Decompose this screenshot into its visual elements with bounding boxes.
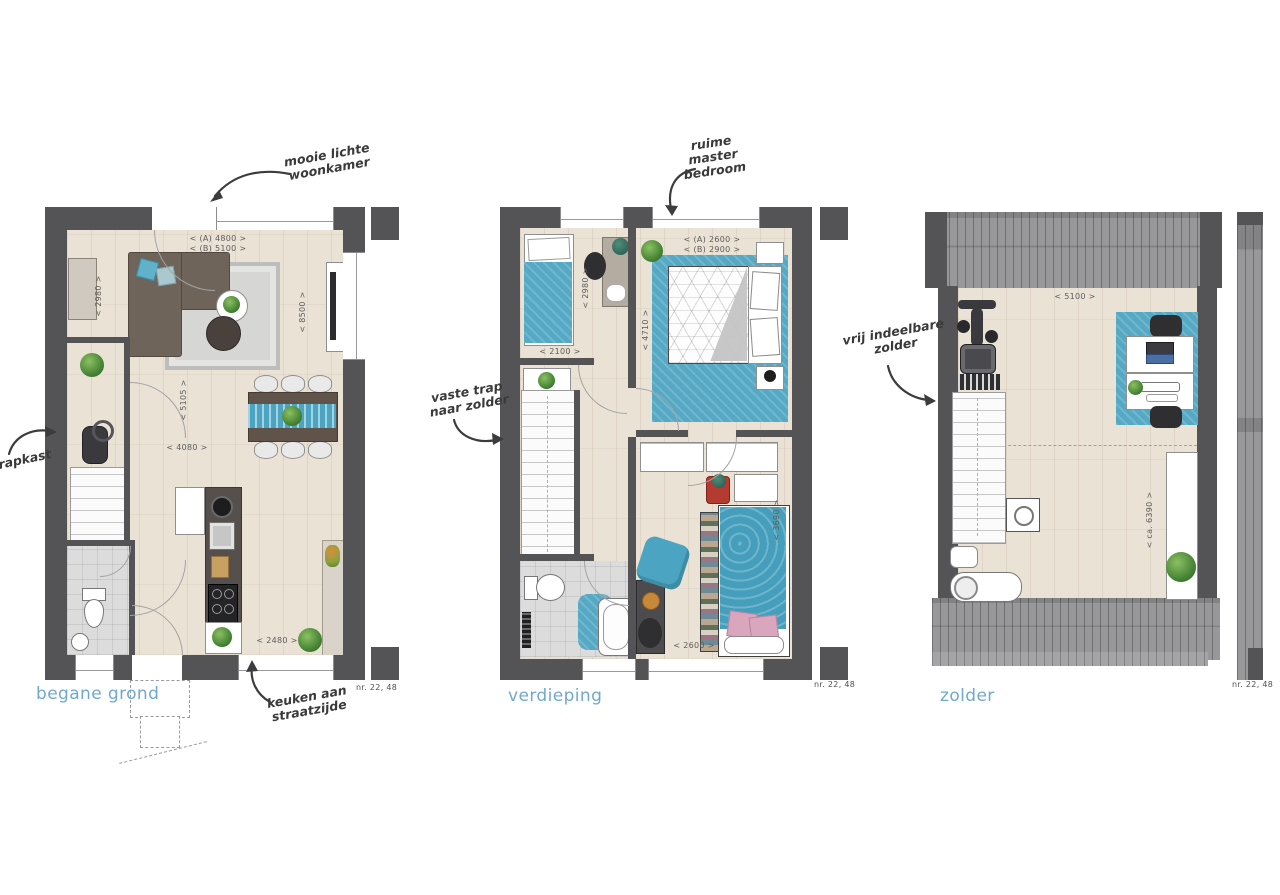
- bed-blanket: [524, 262, 572, 343]
- plant: [223, 296, 240, 313]
- bed-pillow: [750, 317, 781, 357]
- lamp: [764, 370, 776, 382]
- nightstand: [756, 242, 784, 264]
- papers: [606, 284, 626, 302]
- washing-machine-door: [1014, 506, 1034, 526]
- footboard: [724, 636, 784, 654]
- stove-burner: [224, 604, 234, 614]
- wall-post: [1200, 212, 1222, 288]
- dimension-label: < 2100 >: [532, 347, 588, 357]
- dimension-label: < 4710 >: [641, 295, 651, 365]
- dimension-label: < 2980 >: [581, 253, 591, 323]
- plant: [1166, 552, 1196, 582]
- toilet-bowl: [536, 574, 565, 601]
- dining-chair: [308, 441, 332, 459]
- dimension-label: < 2480 >: [247, 636, 307, 646]
- dining-chair: [254, 441, 278, 459]
- annotation-arrow: [878, 360, 942, 410]
- window: [75, 655, 114, 680]
- dimension-label: < 3690 >: [772, 485, 782, 555]
- wall-exterior: [792, 207, 812, 680]
- dining-chair: [281, 441, 305, 459]
- dimension-label: < ca. 6390 >: [1145, 480, 1155, 560]
- dimension-label: < (B) 2900 >: [672, 245, 752, 255]
- annotation-arrow: [448, 412, 510, 450]
- party-wall: [820, 647, 848, 680]
- wall-segment: [67, 337, 130, 343]
- wall-segment: [628, 437, 636, 659]
- roof-strip-neighbor: [1237, 212, 1263, 680]
- bathtub-inner: [603, 604, 629, 650]
- plant: [612, 238, 629, 255]
- stove-burner: [224, 589, 234, 599]
- annotation-arrow: [4, 418, 62, 458]
- plant: [538, 372, 555, 389]
- plant: [212, 627, 232, 647]
- window: [648, 659, 764, 680]
- exercise-bike-seat: [960, 344, 996, 374]
- coffee-machine: [211, 496, 233, 518]
- window: [560, 207, 624, 228]
- roof-slope: [925, 212, 1222, 288]
- staircase-walkline: [977, 398, 978, 536]
- plant: [1128, 380, 1143, 395]
- boiler-cap: [954, 576, 978, 600]
- radiator: [522, 612, 531, 648]
- annotation-arrow: [238, 658, 278, 706]
- floorplan-sheet: < (A) 4800 > < (B) 5100 > < 8500 > < 298…: [0, 0, 1280, 895]
- staircase: [952, 392, 1006, 544]
- wall-segment: [628, 228, 636, 388]
- keyboard: [1146, 394, 1178, 402]
- tv: [330, 272, 336, 340]
- dimension-label: < 8500 >: [298, 277, 308, 347]
- dimension-label: < 2600 >: [666, 641, 722, 651]
- wall-segment: [574, 390, 580, 558]
- party-wall: [371, 647, 399, 680]
- wall-segment: [520, 554, 594, 561]
- wall-post: [925, 212, 947, 288]
- sideboard: [68, 258, 97, 320]
- staircase-walkline: [547, 396, 548, 552]
- office-chair: [1150, 406, 1182, 428]
- wall-segment: [520, 358, 594, 365]
- wall-post: [1237, 212, 1263, 225]
- cutting-board: [211, 556, 229, 578]
- keyboard: [1140, 382, 1180, 392]
- unit-number: nr. 22, 48: [356, 683, 397, 692]
- roof-slope: [932, 598, 1220, 660]
- plan-label-attic: zolder: [940, 686, 995, 706]
- bed-pillow: [527, 237, 570, 261]
- exercise-bike-wheel: [985, 330, 998, 343]
- vegetable-basket: [325, 545, 340, 567]
- unit-number: nr. 22, 48: [1232, 680, 1273, 689]
- dimension-label: < (A) 2600 >: [672, 235, 752, 245]
- door-opening: [132, 655, 182, 680]
- unit-number: nr. 22, 48: [814, 680, 855, 689]
- stool: [642, 592, 660, 610]
- dimension-label: < (B) 5100 >: [178, 244, 258, 254]
- bed-pillow: [750, 271, 781, 311]
- wall-exterior: [1197, 286, 1217, 600]
- office-chair: [1150, 315, 1182, 337]
- entry-steps: [140, 716, 180, 748]
- annotation-arrow: [655, 163, 700, 218]
- dimension-label: < 2980 >: [94, 261, 104, 331]
- dumbbell-rack: [958, 374, 1000, 390]
- dimension-label: < 4080 >: [157, 443, 217, 453]
- roof-edge: [932, 652, 1208, 666]
- window: [343, 252, 365, 360]
- dining-chair: [281, 375, 305, 393]
- plan-label-ground: begane grond: [36, 684, 159, 704]
- washbasin: [71, 633, 89, 651]
- wall-segment: [636, 430, 688, 437]
- wall-post: [1248, 648, 1263, 680]
- exercise-bike-wheel: [957, 320, 970, 333]
- desk-chair: [638, 618, 662, 648]
- annotation-arrow: [205, 168, 295, 213]
- annotation-zolder: vrij indeelbare zolder: [840, 316, 948, 362]
- coffee-table-round: [206, 316, 241, 351]
- staircase: [521, 390, 577, 560]
- dining-chair: [308, 375, 332, 393]
- dimension-label: < 5100 >: [1040, 292, 1110, 302]
- party-wall: [820, 207, 848, 240]
- plant: [80, 353, 104, 377]
- stove-burner: [212, 604, 222, 614]
- laptop-base: [1146, 354, 1174, 364]
- fridge: [175, 487, 205, 535]
- exercise-bike-frame: [971, 308, 983, 346]
- staircase: [70, 467, 126, 548]
- wall-segment: [124, 343, 130, 546]
- window: [582, 659, 636, 680]
- bookshelf: [700, 512, 719, 652]
- stove-burner: [212, 589, 222, 599]
- dimension-label: < (A) 4800 >: [178, 234, 258, 244]
- wall-segment: [736, 430, 792, 437]
- dining-chair: [254, 375, 278, 393]
- utility-box: [950, 546, 978, 568]
- vacuum-cleaner-hose: [92, 420, 114, 442]
- plant: [641, 240, 663, 262]
- party-wall: [371, 207, 399, 240]
- plan-label-first: verdieping: [508, 686, 602, 706]
- plant: [282, 406, 302, 426]
- kitchen-sink: [209, 522, 235, 550]
- dimension-label: < 5105 >: [179, 365, 189, 435]
